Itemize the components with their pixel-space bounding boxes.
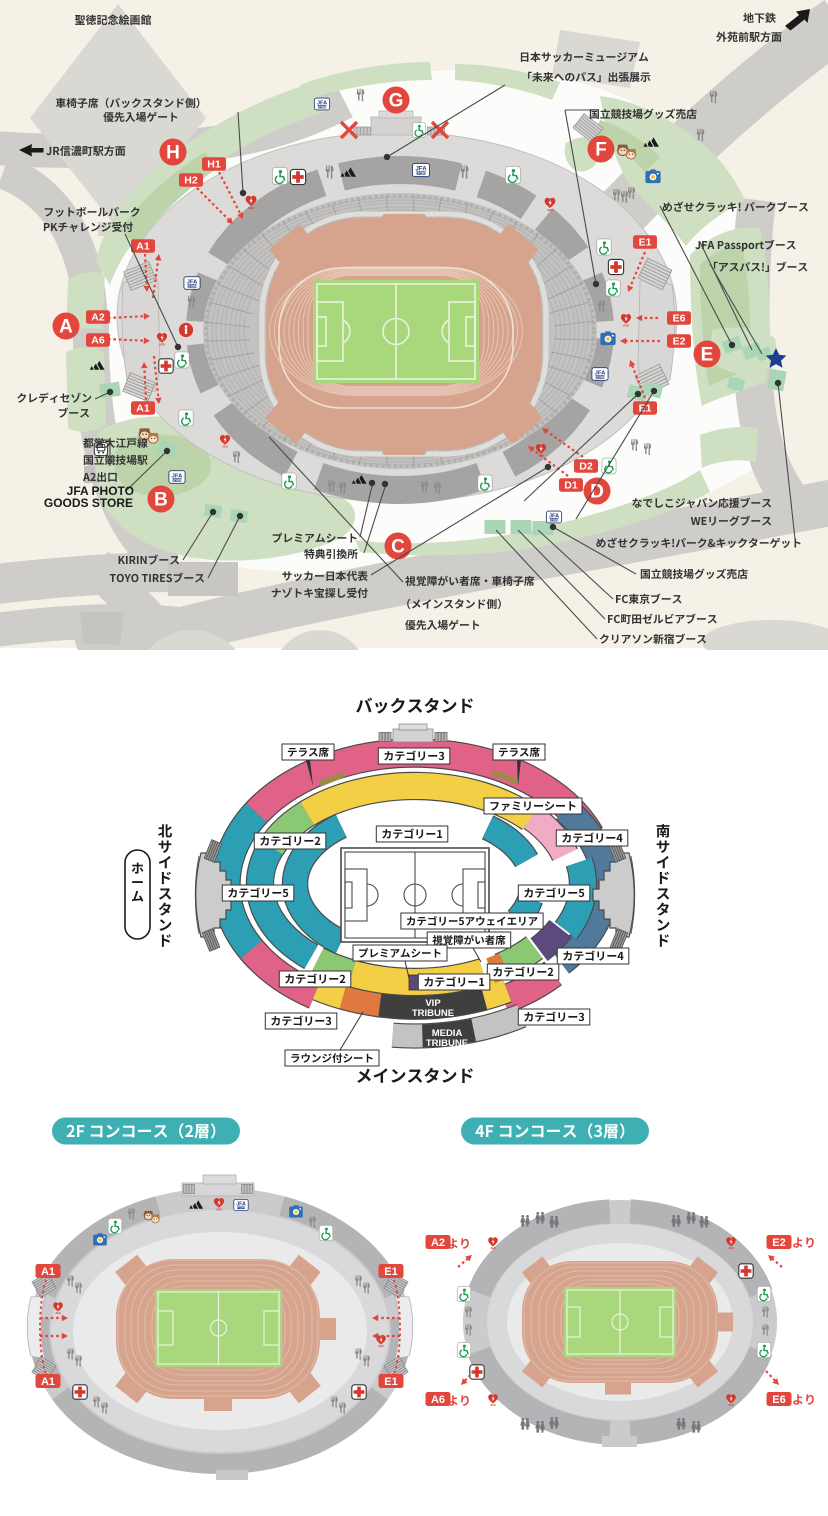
svg-text:E1: E1 — [384, 1266, 397, 1278]
svg-text:A1: A1 — [41, 1376, 55, 1388]
svg-text:E: E — [701, 345, 714, 366]
svg-text:D1: D1 — [564, 480, 578, 492]
svg-text:A1: A1 — [136, 241, 150, 253]
svg-text:H1: H1 — [207, 159, 221, 171]
svg-text:A1: A1 — [41, 1266, 55, 1278]
svg-text:H: H — [166, 143, 180, 164]
svg-text:H2: H2 — [184, 175, 198, 187]
svg-text:E1: E1 — [384, 1376, 397, 1388]
svg-text:E6: E6 — [673, 313, 686, 325]
svg-text:E1: E1 — [639, 237, 652, 249]
svg-text:A: A — [59, 317, 73, 338]
svg-text:TRIBUNE: TRIBUNE — [426, 1038, 468, 1049]
svg-text:A6: A6 — [91, 335, 105, 347]
svg-text:G: G — [389, 91, 404, 112]
svg-text:A2: A2 — [431, 1237, 445, 1249]
svg-text:F: F — [595, 140, 607, 161]
svg-text:E6: E6 — [772, 1394, 785, 1406]
svg-text:TRIBUNE: TRIBUNE — [412, 1008, 454, 1019]
svg-text:GOODS STORE: GOODS STORE — [44, 496, 133, 510]
svg-text:A2: A2 — [91, 312, 105, 324]
svg-text:C: C — [391, 537, 405, 558]
svg-text:A6: A6 — [431, 1394, 445, 1406]
svg-text:A1: A1 — [136, 403, 150, 415]
svg-text:B: B — [154, 490, 168, 511]
svg-text:D2: D2 — [579, 461, 593, 473]
svg-text:E2: E2 — [673, 336, 686, 348]
svg-text:E2: E2 — [772, 1237, 785, 1249]
